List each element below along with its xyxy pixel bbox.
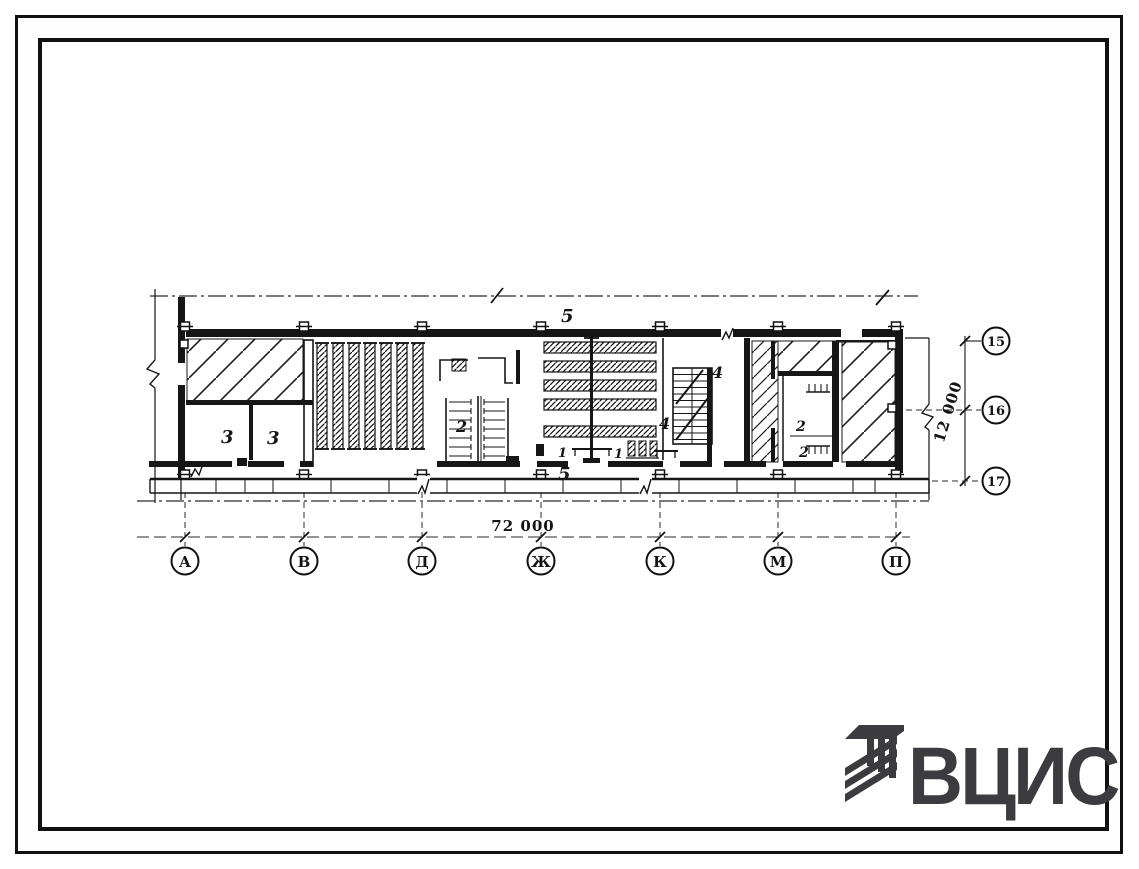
room-label: 3 <box>267 428 280 449</box>
bottom-dimension: 72 000 <box>137 492 910 546</box>
room-label: 4 <box>712 363 723 382</box>
svg-text:Ж: Ж <box>531 553 551 571</box>
axis-marker-bottom-7: П <box>883 548 910 575</box>
room-label: 2 <box>455 417 467 436</box>
axis-marker-bottom-1: А <box>172 548 199 575</box>
right-dimension: 12 000 <box>906 336 981 486</box>
axis-marker-bottom-3: Д <box>409 548 436 575</box>
svg-text:В: В <box>298 553 311 571</box>
hatched-storage-areas <box>187 339 895 462</box>
svg-text:М: М <box>770 553 787 571</box>
loading-platform <box>150 476 929 496</box>
room-label: 2 <box>795 419 806 435</box>
axis-marker-right-2: 16 <box>983 397 1010 424</box>
svg-text:А: А <box>179 553 192 571</box>
svg-text:К: К <box>653 553 667 571</box>
svg-text:Д: Д <box>415 553 428 571</box>
axis-marker-right-3: 17 <box>983 468 1010 495</box>
dimension-bottom-total: 72 000 <box>491 517 554 535</box>
room-label: 1 <box>558 446 567 461</box>
logo: ВЦИС <box>845 725 1119 822</box>
bottom-axis-markers: А В Д Ж К М П <box>172 548 910 575</box>
svg-text:17: 17 <box>987 475 1005 490</box>
svg-text:П: П <box>889 553 903 571</box>
svg-text:16: 16 <box>987 404 1005 419</box>
svg-text:15: 15 <box>987 335 1005 350</box>
room-label: 1 <box>614 447 623 462</box>
dimension-right-total: 12 000 <box>930 379 966 445</box>
staircase <box>673 368 712 461</box>
floor-plan-drawing: 72 000 А В Д Ж К М П <box>0 0 1139 869</box>
room-label: 5 <box>558 464 571 485</box>
cloakroom-room <box>440 350 520 462</box>
room-label: 5 <box>561 306 574 327</box>
room-label: 3 <box>221 427 234 448</box>
vertical-racks <box>315 343 425 449</box>
axis-marker-right-1: 15 <box>983 328 1010 355</box>
axis-marker-bottom-6: М <box>765 548 792 575</box>
axis-marker-bottom-5: К <box>647 548 674 575</box>
logo-text: ВЦИС <box>908 729 1119 821</box>
right-axis-markers: 15 16 17 <box>983 328 1010 495</box>
axis-marker-bottom-4: Ж <box>528 548 555 575</box>
room-label: 2 <box>798 445 809 461</box>
room-label: 4 <box>659 414 670 433</box>
logo-emblem-icon <box>845 725 904 802</box>
axis-marker-bottom-2: В <box>291 548 318 575</box>
